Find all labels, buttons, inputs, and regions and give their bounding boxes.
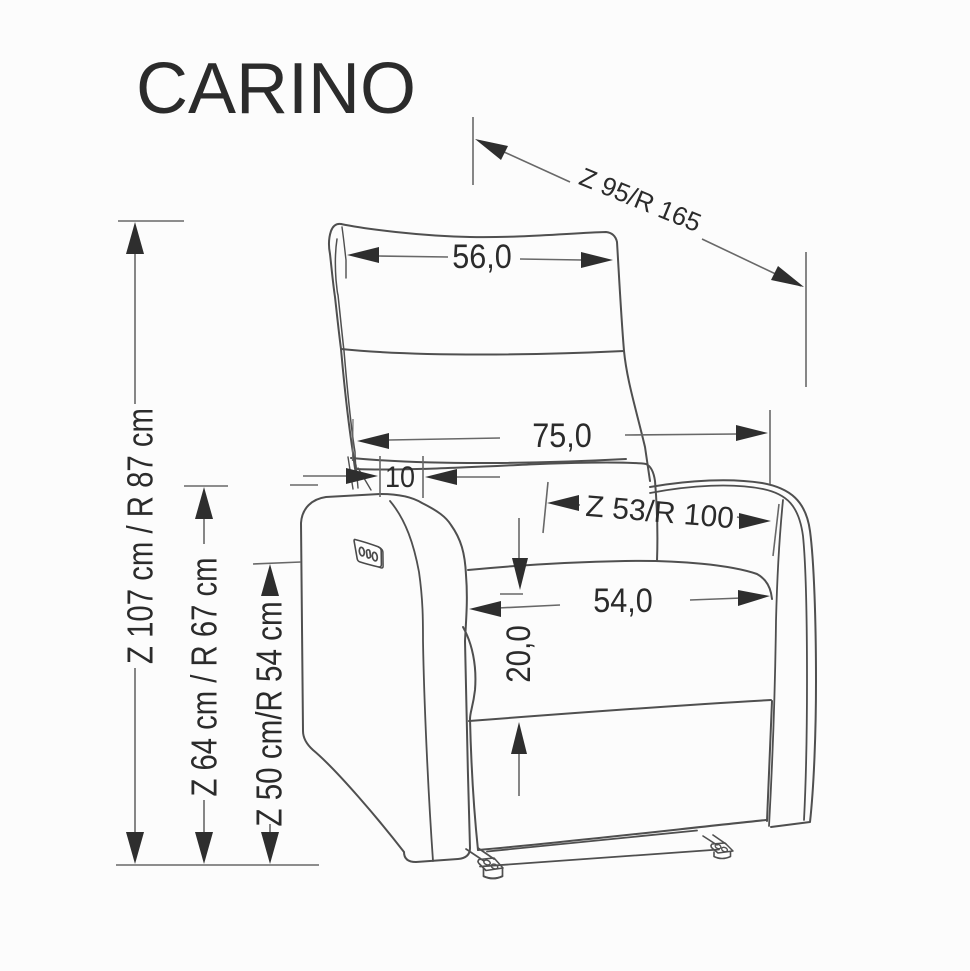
svg-text:56,0: 56,0	[452, 238, 512, 276]
svg-text:CARINO: CARINO	[136, 49, 416, 129]
svg-text:75,0: 75,0	[532, 417, 592, 455]
svg-text:Z 64 cm / R 67 cm: Z 64 cm / R 67 cm	[184, 557, 225, 796]
svg-text:20,0: 20,0	[499, 625, 537, 683]
svg-text:Z 107 cm / R 87 cm: Z 107 cm / R 87 cm	[120, 408, 161, 664]
svg-text:Z 50 cm/R 54 cm: Z 50 cm/R 54 cm	[249, 601, 289, 826]
svg-text:10: 10	[385, 461, 415, 495]
svg-text:54,0: 54,0	[593, 582, 653, 620]
